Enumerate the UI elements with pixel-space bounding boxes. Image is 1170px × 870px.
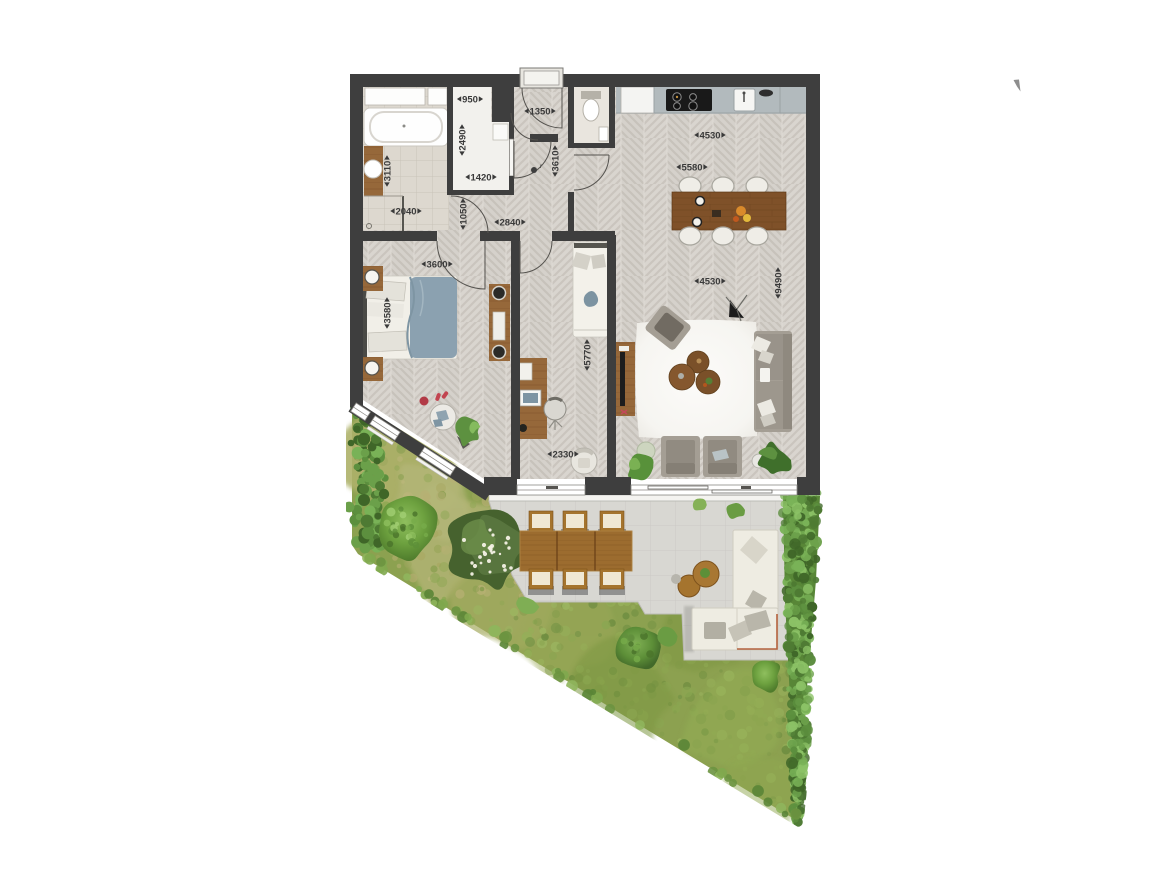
svg-text:1420: 1420 (470, 172, 491, 183)
svg-text:2040: 2040 (395, 206, 416, 217)
svg-text:4530: 4530 (699, 276, 720, 287)
svg-text:3110: 3110 (382, 161, 393, 182)
svg-text:3610: 3610 (550, 150, 561, 171)
svg-text:3580: 3580 (382, 302, 393, 323)
svg-text:r: r (540, 164, 542, 170)
svg-text:2840: 2840 (499, 217, 520, 228)
svg-text:2330: 2330 (552, 449, 573, 460)
svg-text:4530: 4530 (699, 130, 720, 141)
svg-text:1350: 1350 (529, 106, 550, 117)
svg-text:950: 950 (462, 94, 478, 105)
svg-text:5770: 5770 (582, 344, 593, 365)
svg-text:1050: 1050 (458, 203, 469, 224)
svg-text:3600: 3600 (426, 259, 447, 270)
svg-text:2490: 2490 (457, 129, 468, 150)
svg-text:9490: 9490 (773, 272, 784, 293)
svg-text:5580: 5580 (681, 162, 702, 173)
